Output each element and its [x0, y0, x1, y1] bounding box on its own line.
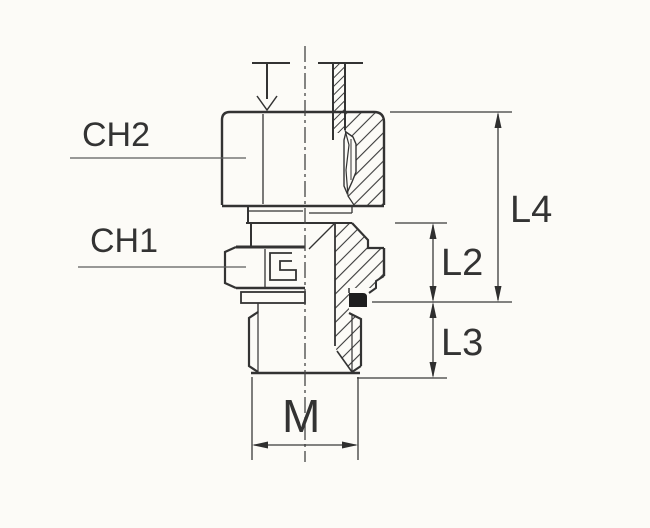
tube-wall-hatch [333, 63, 345, 133]
seal-section-fill [349, 293, 367, 307]
label-l4: L4 [510, 189, 552, 231]
technical-drawing-canvas: CH2 CH1 L4 L2 L3 M [0, 0, 650, 528]
label-ch1: CH1 [90, 222, 158, 260]
drawing-background [0, 0, 650, 528]
label-m: M [282, 390, 320, 442]
label-ch2: CH2 [82, 116, 150, 154]
label-l2: L2 [441, 242, 483, 284]
fitting-drawing: CH2 CH1 L4 L2 L3 M [0, 0, 650, 528]
label-l3: L3 [441, 322, 483, 364]
